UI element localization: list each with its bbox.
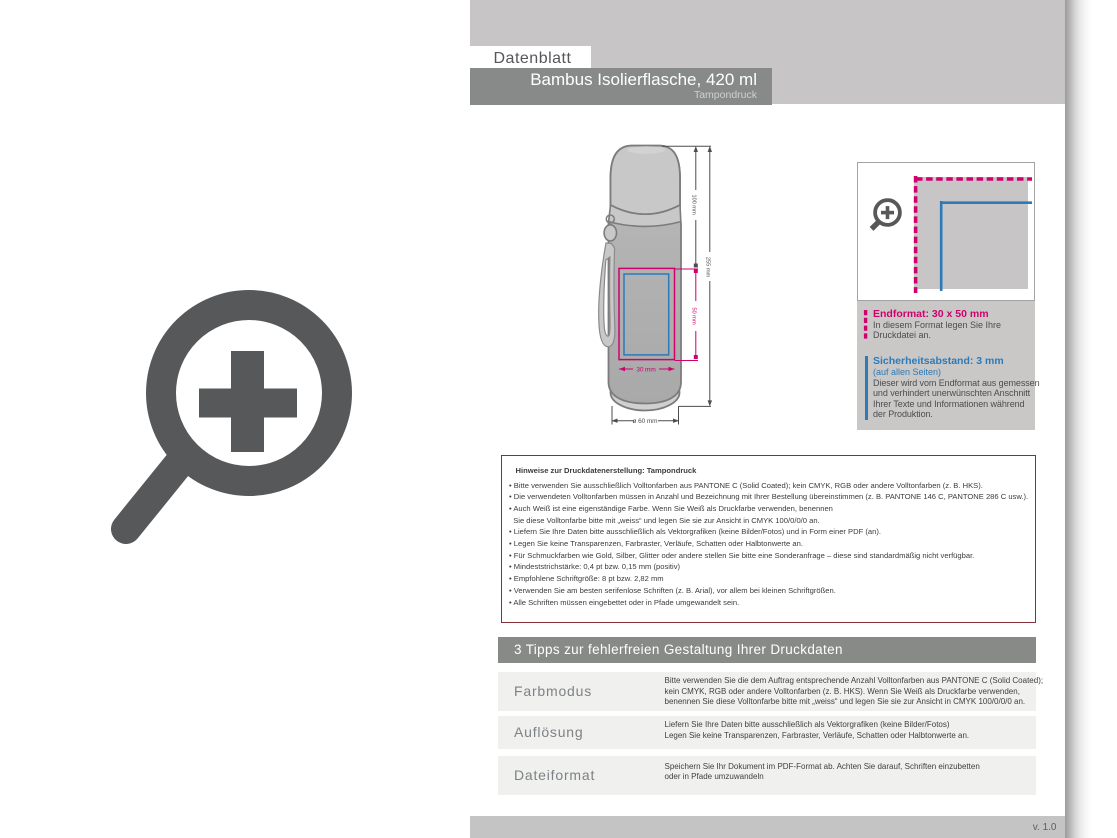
svg-text:255 mm: 255 mm <box>705 257 711 278</box>
svg-text:50 mm: 50 mm <box>691 307 697 324</box>
svg-text:ø 60 mm: ø 60 mm <box>633 418 658 425</box>
svg-text:100 mm: 100 mm <box>691 194 697 215</box>
svg-text:30 mm: 30 mm <box>636 367 655 374</box>
